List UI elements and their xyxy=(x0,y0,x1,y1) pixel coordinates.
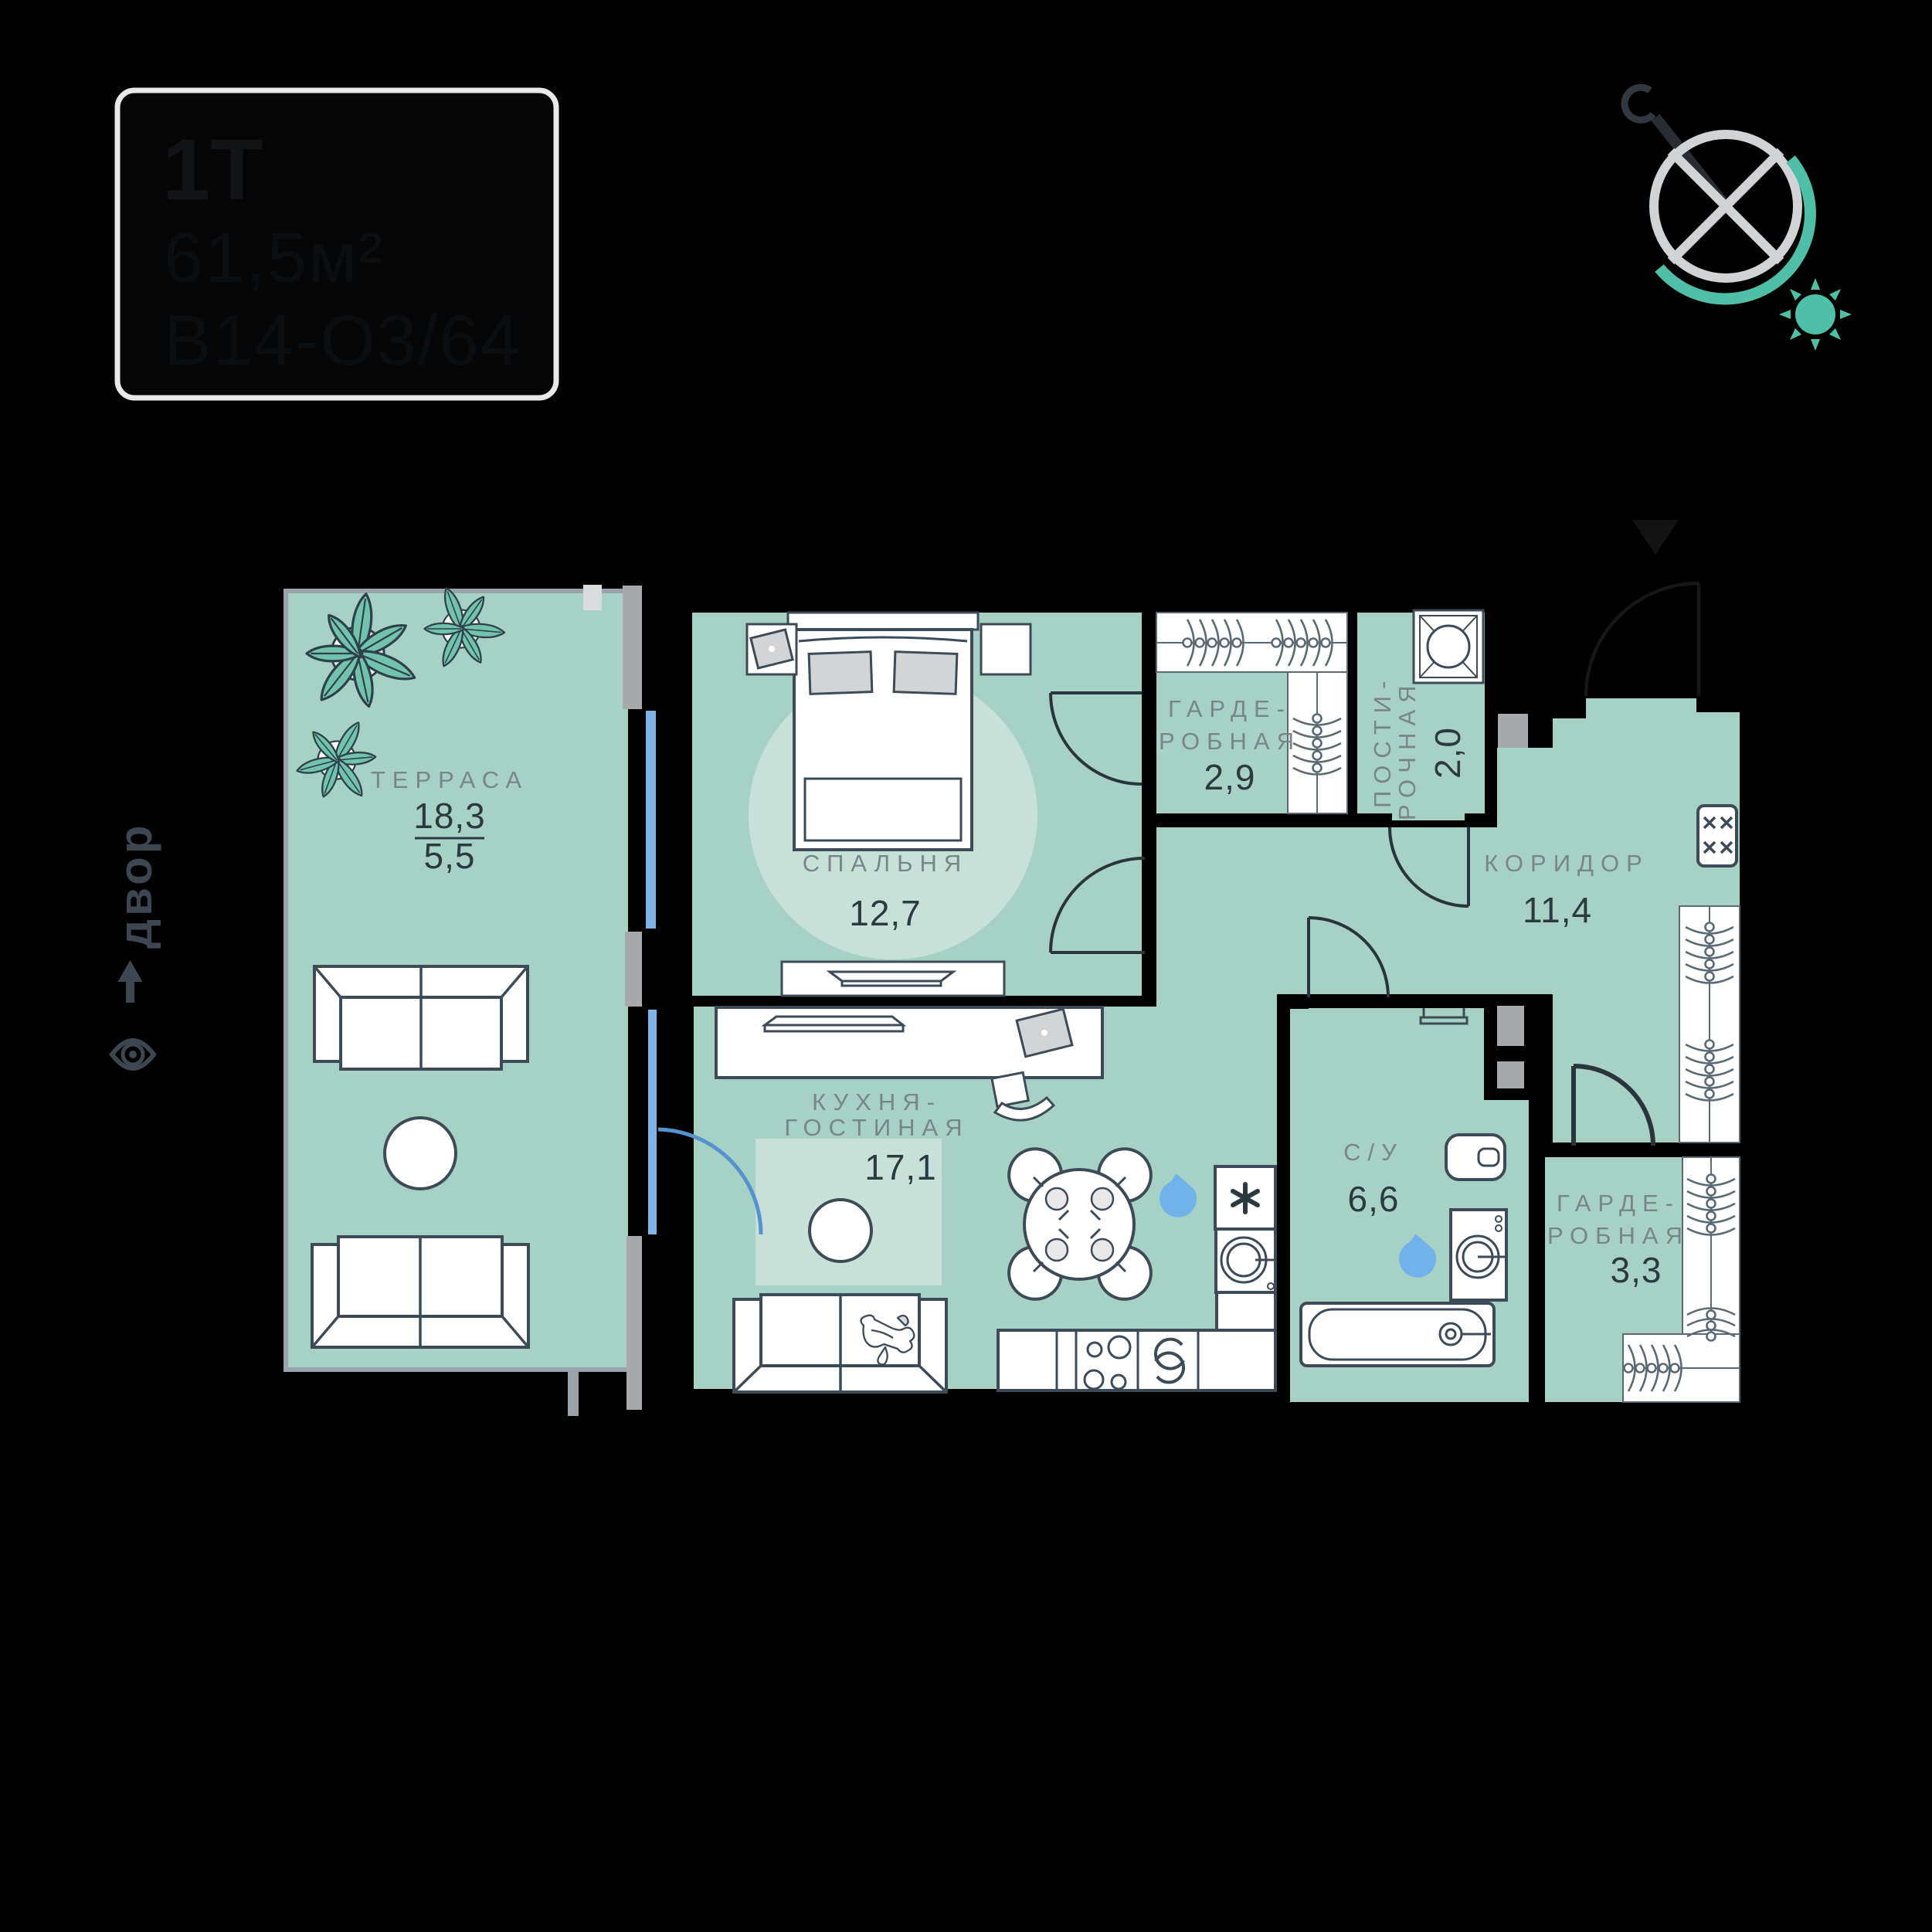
svg-text:двор: двор xyxy=(110,823,161,949)
svg-text:ГАРДЕ-: ГАРДЕ- xyxy=(1168,695,1292,722)
svg-text:ГАРДЕ-: ГАРДЕ- xyxy=(1557,1190,1680,1217)
svg-text:ТЕРРАСА: ТЕРРАСА xyxy=(371,766,528,793)
svg-text:18,3: 18,3 xyxy=(413,796,486,836)
svg-text:5,5: 5,5 xyxy=(424,836,476,876)
svg-text:СПАЛЬНЯ: СПАЛЬНЯ xyxy=(803,850,969,877)
svg-text:17,1: 17,1 xyxy=(864,1147,937,1187)
svg-text:ГОСТИНАЯ: ГОСТИНАЯ xyxy=(784,1114,969,1141)
svg-text:2,9: 2,9 xyxy=(1204,757,1256,797)
svg-text:КОРИДОР: КОРИДОР xyxy=(1484,850,1649,877)
svg-text:КУХНЯ-: КУХНЯ- xyxy=(812,1088,942,1115)
svg-text:2,0: 2,0 xyxy=(1428,727,1468,779)
svg-text:С/У: С/У xyxy=(1343,1139,1404,1166)
svg-text:ПОСТИ-: ПОСТИ- xyxy=(1369,674,1396,808)
svg-text:11,4: 11,4 xyxy=(1523,890,1592,930)
svg-text:РОБНАЯ: РОБНАЯ xyxy=(1159,728,1301,755)
svg-text:В14-О3/64: В14-О3/64 xyxy=(164,301,521,380)
svg-text:3,3: 3,3 xyxy=(1611,1250,1662,1290)
svg-text:1Т: 1Т xyxy=(162,121,263,218)
svg-text:РОЧНАЯ: РОЧНАЯ xyxy=(1394,678,1421,820)
svg-text:61,5м²: 61,5м² xyxy=(164,219,384,297)
svg-text:12,7: 12,7 xyxy=(849,893,922,933)
svg-text:6,6: 6,6 xyxy=(1348,1179,1400,1219)
svg-text:РОБНАЯ: РОБНАЯ xyxy=(1547,1222,1689,1249)
